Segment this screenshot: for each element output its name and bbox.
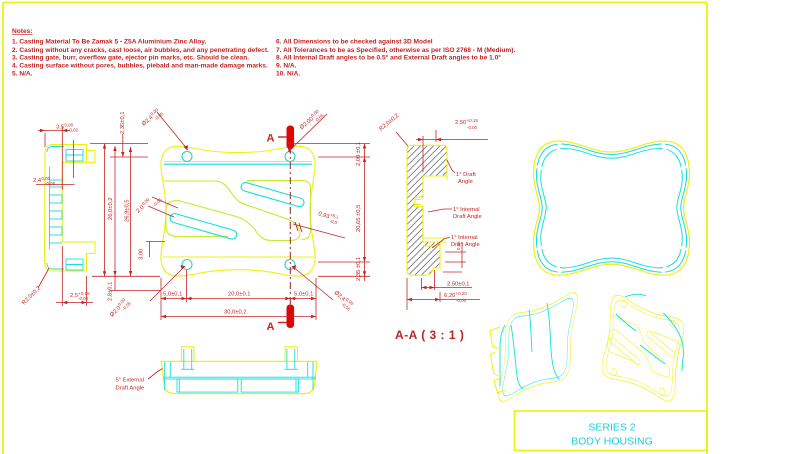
svg-text:-0,05: -0,05 [45,181,56,186]
svg-text:-0,00: -0,00 [456,298,467,303]
svg-text:26,0±0,2: 26,0±0,2 [108,197,114,220]
svg-text:3,00: 3,00 [139,249,145,260]
svg-text:A: A [267,321,275,333]
svg-text:2,35±0,1: 2,35±0,1 [120,111,126,134]
svg-text:10. N/A.: 10. N/A. [276,71,300,78]
svg-text:A-A ( 3 : 1 ): A-A ( 3 : 1 ) [395,328,464,342]
svg-text:SERIES 2: SERIES 2 [588,422,635,434]
svg-text:A: A [267,133,275,145]
svg-text:30,0±0,2: 30,0±0,2 [224,310,247,316]
svg-text:2,8±0,1: 2,8±0,1 [108,282,114,301]
svg-text:2,50±0,1: 2,50±0,1 [447,282,470,288]
svg-text:2. Casting without any cracks,: 2. Casting without any cracks, cast loos… [12,47,269,54]
svg-text:20,65 ±0,5: 20,65 ±0,5 [356,205,362,232]
svg-text:7. All Tolerances to be as Spe: 7. All Tolerances to be as Specified, ot… [276,47,515,54]
svg-text:-0,00: -0,00 [467,125,478,130]
svg-text:8. All Internal Draft angles t: 8. All Internal Draft angles to be 0.5° … [276,54,501,62]
svg-text:1° Internal: 1° Internal [451,235,478,241]
svg-text:5,0±0,1: 5,0±0,1 [163,292,182,298]
svg-text:20,0±0,1: 20,0±0,1 [228,292,251,298]
svg-text:-0,00: -0,00 [78,296,89,301]
svg-text:3. Casting gate, burr, overflo: 3. Casting gate, burr, overflow gate, ej… [12,55,249,62]
svg-text:4. Casting surface without por: 4. Casting surface without pores, bubble… [12,63,268,70]
svg-text:6. All Dimensions to be checke: 6. All Dimensions to be checked against … [276,39,433,46]
svg-text:5° External: 5° External [116,378,144,384]
svg-text:1° Draft: 1° Draft [456,172,476,178]
svg-text:Draft Angle: Draft Angle [453,214,482,220]
svg-text:0,95: 0,95 [456,241,461,250]
svg-text:1° Internal: 1° Internal [453,207,480,213]
svg-text:26,9±0,5: 26,9±0,5 [125,199,131,222]
svg-text:Notes:: Notes: [12,28,33,35]
svg-text:5,0±0,1: 5,0±0,1 [294,292,313,298]
svg-text:2,00 ±0,1: 2,00 ±0,1 [356,142,362,166]
svg-text:9. N/A.: 9. N/A. [276,63,297,70]
svg-text:BODY HOUSING: BODY HOUSING [571,436,653,448]
svg-text:Draft Angle: Draft Angle [116,386,145,392]
svg-text:Angle: Angle [458,179,473,185]
svg-text:2,35 ±0,1: 2,35 ±0,1 [356,257,362,281]
svg-text:-0,02: -0,02 [68,128,79,133]
svg-text:1. Casting Material To Be Zama: 1. Casting Material To Be Zamak 5 - Z5A … [12,39,206,46]
svg-text:5. N/A.: 5. N/A. [12,71,33,78]
